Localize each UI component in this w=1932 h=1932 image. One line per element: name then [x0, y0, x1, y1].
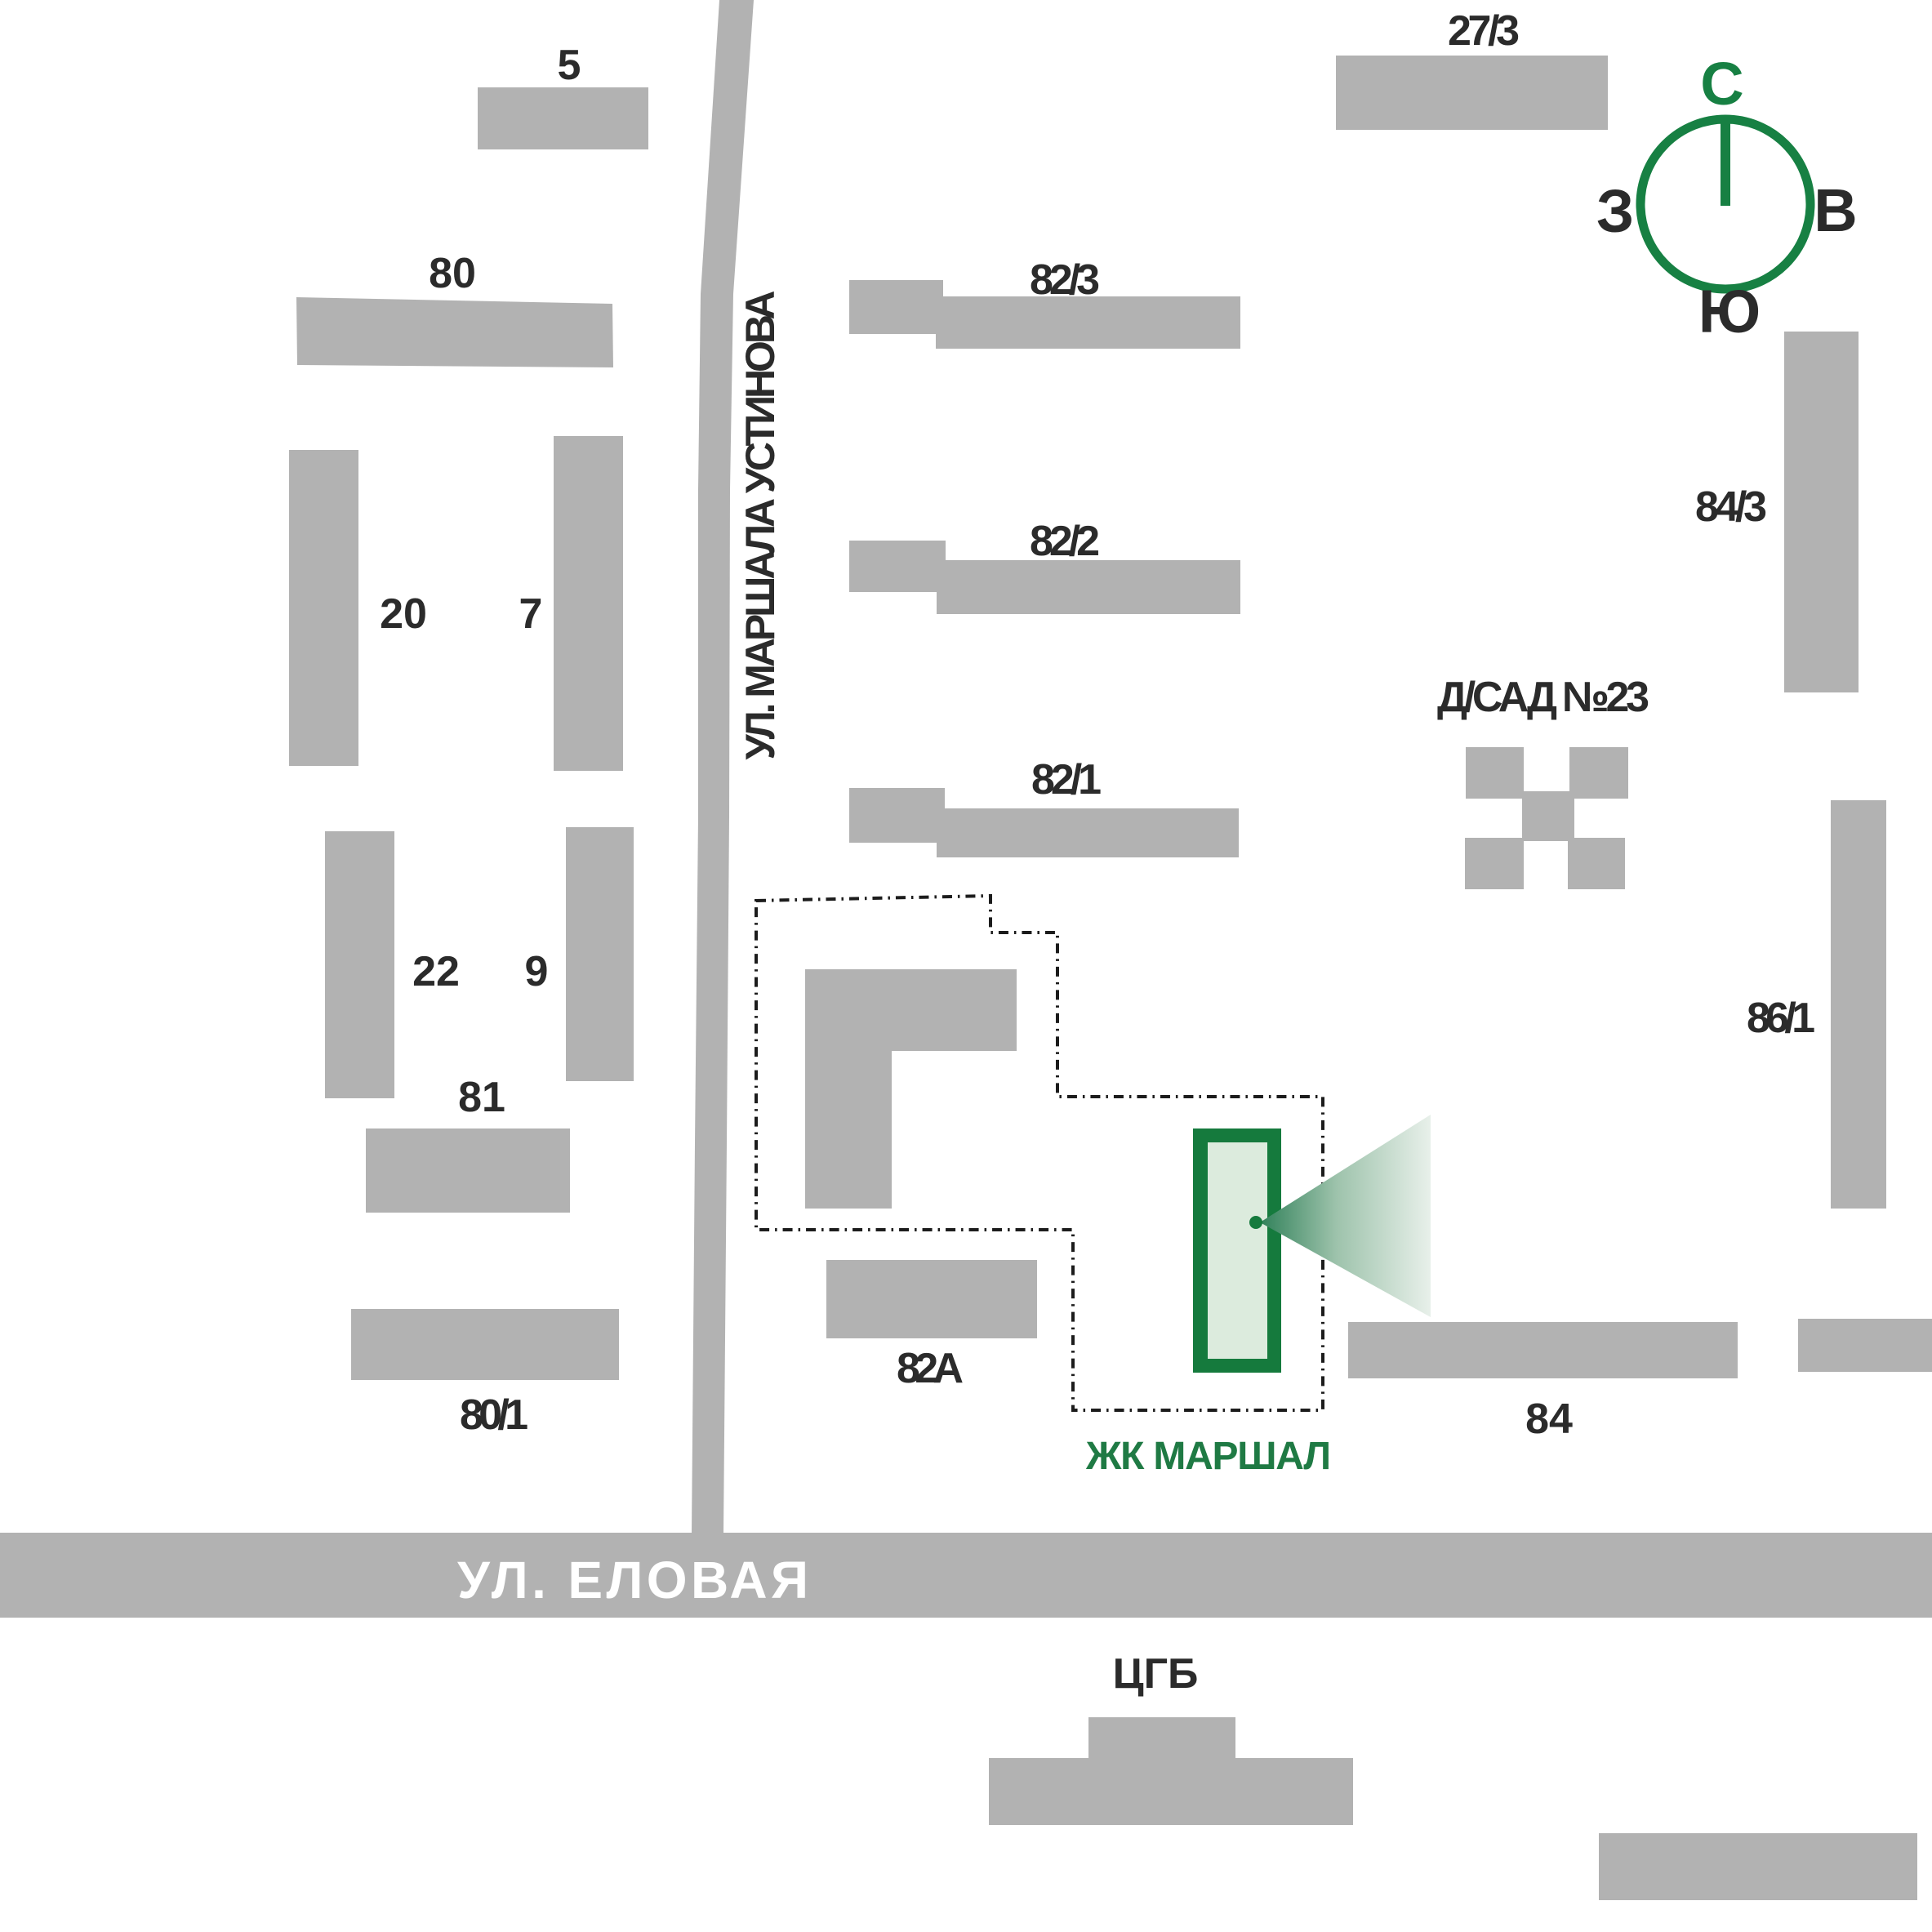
svg-text:82/3: 82/3	[1030, 256, 1100, 304]
svg-text:86/1: 86/1	[1747, 995, 1815, 1042]
svg-text:5: 5	[558, 42, 581, 89]
svg-text:82A: 82A	[897, 1345, 964, 1392]
svg-text:82/1: 82/1	[1031, 756, 1102, 804]
svg-text:7: 7	[519, 590, 543, 638]
svg-text:82/2: 82/2	[1030, 518, 1100, 565]
svg-text:20: 20	[380, 590, 427, 638]
svg-text:80: 80	[429, 250, 476, 297]
svg-text:22: 22	[412, 948, 460, 995]
svg-text:9: 9	[525, 948, 549, 995]
svg-text:27/3: 27/3	[1448, 7, 1520, 55]
svg-text:С: С	[1700, 50, 1743, 118]
svg-text:84/3: 84/3	[1695, 483, 1767, 531]
svg-text:ЖК МАРШАЛ: ЖК МАРШАЛ	[1085, 1435, 1331, 1478]
svg-text:Ю: Ю	[1698, 278, 1761, 345]
svg-text:В: В	[1814, 176, 1857, 244]
svg-text:З: З	[1596, 177, 1634, 245]
svg-text:УЛ. МАРШАЛА УСТИНОВА: УЛ. МАРШАЛА УСТИНОВА	[737, 291, 783, 760]
svg-text:Д/САД №23: Д/САД №23	[1437, 674, 1649, 721]
svg-text:84: 84	[1525, 1396, 1573, 1443]
svg-text:81: 81	[458, 1074, 505, 1121]
svg-text:УЛ. ЕЛОВАЯ: УЛ. ЕЛОВАЯ	[457, 1551, 808, 1609]
svg-text:ЦГБ: ЦГБ	[1113, 1650, 1199, 1698]
svg-text:80/1: 80/1	[460, 1391, 528, 1439]
